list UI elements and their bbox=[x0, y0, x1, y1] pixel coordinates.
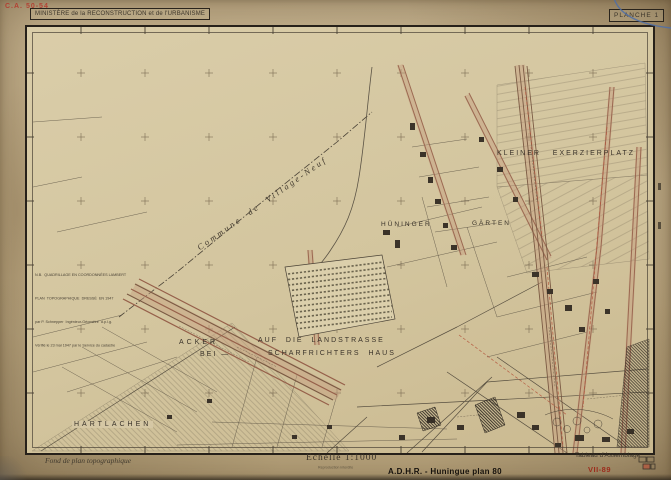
survey-note-line4: Vérifié le 23 mai 1947 par le Service du… bbox=[35, 342, 128, 350]
map-label-kleiner-exerzierplatz: KLEINER EXERZIERPLATZ bbox=[497, 150, 635, 157]
footer-scale: Echelle 1:1000 bbox=[306, 453, 377, 463]
assemblage-grid-icon bbox=[638, 456, 657, 471]
map-label-auf-die-landstrasse: AUF DIE LANDSTRASSE bbox=[258, 337, 385, 344]
map-label-hartlachen: HARTLACHEN bbox=[72, 421, 153, 428]
map-canvas: Commune de Village-Neuf KLEINER EXERZIER… bbox=[25, 25, 655, 455]
survey-note-line3: par P. Schnepper Ingénieur-Géomètre d.p.… bbox=[35, 318, 128, 326]
map-label-scharfrichters-haus: SCHARFRICHTERS HAUS bbox=[268, 350, 396, 357]
plate-number-box: PLANCHE 1 bbox=[609, 9, 664, 22]
footer-base-map-note: Fond de plan topographique bbox=[45, 456, 131, 465]
scan-corner-shadow bbox=[0, 456, 30, 480]
survey-note-block: N.B. QUADRILLAGE EN COORDONNÉES LAMBERT … bbox=[35, 256, 128, 365]
map-label-huninger: HÜNINGER bbox=[381, 221, 432, 228]
scan-edge-shadow bbox=[0, 474, 671, 480]
survey-note-line2: PLAN TOPOGRAPHIQUE DRESSÉ EN 1947 bbox=[35, 295, 128, 303]
map-label-garten: GÄRTEN bbox=[472, 220, 511, 227]
ministry-title-box: MINISTÈRE de la RECONSTRUCTION et de l'U… bbox=[30, 8, 210, 20]
margin-mark bbox=[658, 183, 661, 190]
footer-assemblage-label: Tableau d'Assemblage bbox=[575, 452, 640, 459]
survey-note-line1: N.B. QUADRILLAGE EN COORDONNÉES LAMBERT bbox=[35, 272, 128, 280]
map-label-acker: ACKER bbox=[179, 339, 218, 346]
footer-scale-subnote: Reproduction interdite bbox=[318, 466, 353, 470]
scanned-map-sheet: C.A. 50-54 MINISTÈRE de la RECONSTRUCTIO… bbox=[0, 0, 671, 480]
footer-cote: VII-89 bbox=[588, 465, 611, 474]
margin-mark bbox=[658, 222, 661, 229]
map-linework bbox=[27, 27, 653, 453]
map-label-bei: BEI — bbox=[200, 351, 230, 358]
